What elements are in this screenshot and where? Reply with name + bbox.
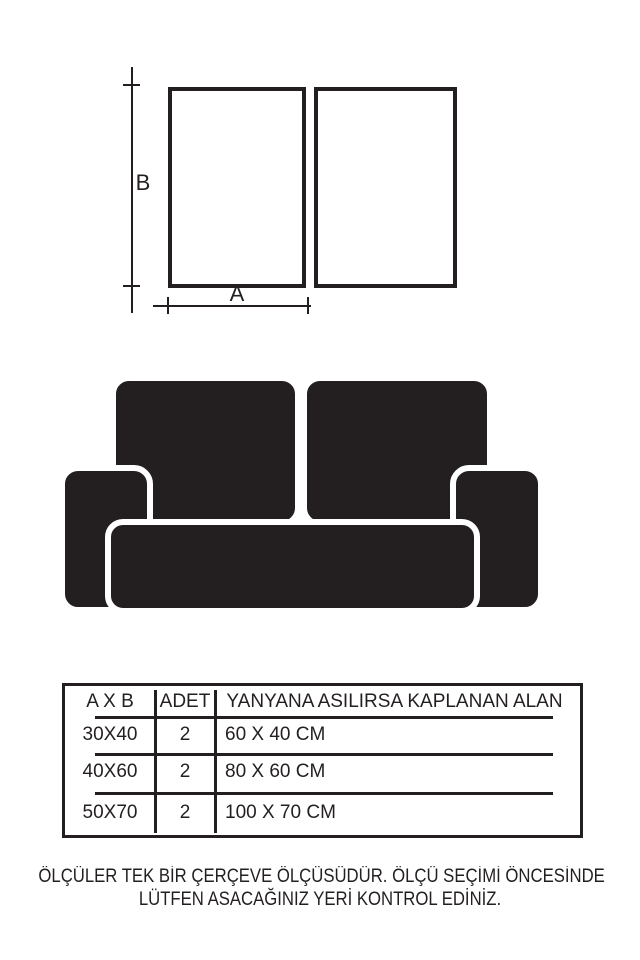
frame-right	[314, 87, 457, 288]
table-cell-axb: 40X60	[65, 759, 155, 785]
table-row-rule-3	[95, 792, 553, 795]
table-cell-alan: 80 X 60 CM	[225, 759, 325, 785]
note-line-2: LÜTFEN ASACAĞINIZ YERİ KONTROL EDİNİZ.	[38, 889, 601, 912]
table-cell-alan: 100 X 70 CM	[225, 800, 336, 826]
table-cell-axb: 30X40	[65, 722, 155, 748]
table-cell-adet: 2	[157, 759, 213, 785]
table-cell-adet: 2	[157, 722, 213, 748]
table-header-adet: ADET	[157, 689, 213, 715]
dim-tick-b-bottom	[123, 285, 140, 287]
dim-tick-b-top	[123, 84, 140, 86]
frame-left	[168, 87, 306, 288]
table-cell-alan: 60 X 40 CM	[225, 722, 325, 748]
size-table: A X B ADET YANYANA ASILIRSA KAPLANAN ALA…	[62, 683, 583, 838]
dim-tick-a-right	[307, 297, 309, 314]
table-row-rule-1	[95, 716, 553, 719]
table-cell-axb: 50X70	[65, 800, 155, 826]
disclaimer-note: ÖLÇÜLER TEK BİR ÇERÇEVE ÖLÇÜSÜDÜR. ÖLÇÜ …	[38, 866, 601, 911]
dim-label-b: B	[130, 171, 156, 195]
table-header-axb: A X B	[65, 689, 155, 715]
table-header-alan: YANYANA ASILIRSA KAPLANAN ALAN	[215, 689, 574, 715]
sofa-seat-cushion	[108, 522, 477, 611]
product-size-infographic: B A A X B ADET YANYANA ASILIRSA KAPLANAN…	[0, 0, 640, 960]
table-cell-adet: 2	[157, 800, 213, 826]
note-line-1: ÖLÇÜLER TEK BİR ÇERÇEVE ÖLÇÜSÜDÜR. ÖLÇÜ …	[38, 866, 601, 889]
table-row-rule-2	[95, 753, 553, 756]
dim-label-a: A	[224, 283, 250, 305]
sofa-icon	[40, 362, 560, 618]
dim-tick-a-left	[167, 297, 169, 314]
